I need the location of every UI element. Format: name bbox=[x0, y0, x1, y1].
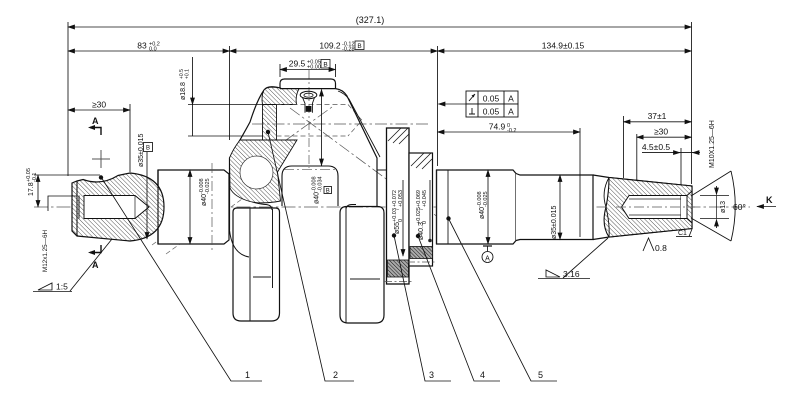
svg-text:B: B bbox=[146, 146, 150, 152]
svg-text:ø40: ø40 bbox=[314, 192, 321, 204]
svg-text:74.9: 74.9 bbox=[489, 122, 506, 132]
svg-text:ø35±0.015: ø35±0.015 bbox=[551, 205, 558, 239]
svg-text:83: 83 bbox=[137, 41, 147, 51]
svg-text:ø35±0.015: ø35±0.015 bbox=[138, 133, 145, 167]
svg-text:+0.00: +0.00 bbox=[307, 65, 321, 71]
svg-text:17.8: 17.8 bbox=[28, 182, 35, 196]
svg-text:0.05: 0.05 bbox=[483, 107, 500, 117]
svg-text:+0.045: +0.045 bbox=[422, 190, 428, 207]
svg-text:-0.2: -0.2 bbox=[507, 128, 516, 134]
svg-text:+0.053: +0.053 bbox=[398, 190, 404, 207]
svg-text:0.8: 0.8 bbox=[655, 243, 667, 253]
svg-text:≥30: ≥30 bbox=[92, 100, 106, 110]
svg-text:3:16: 3:16 bbox=[563, 269, 580, 279]
svg-text:A: A bbox=[508, 107, 514, 117]
svg-text:134.9±0.15: 134.9±0.15 bbox=[542, 41, 585, 51]
svg-text:-0.034: -0.034 bbox=[318, 176, 324, 192]
svg-text:109.2: 109.2 bbox=[319, 41, 341, 51]
svg-text:1:5: 1:5 bbox=[56, 282, 68, 292]
svg-text:2: 2 bbox=[333, 370, 338, 380]
svg-text:M12x1.25—6H: M12x1.25—6H bbox=[42, 230, 49, 272]
svg-text:≥30: ≥30 bbox=[654, 127, 668, 137]
svg-text:B: B bbox=[326, 188, 330, 194]
svg-text:-0.025: -0.025 bbox=[205, 178, 211, 194]
svg-text:B: B bbox=[357, 43, 361, 50]
svg-text:A: A bbox=[92, 260, 99, 270]
svg-text:A: A bbox=[508, 94, 514, 104]
svg-text:ø40: ø40 bbox=[479, 207, 486, 219]
svg-text:+0.1: +0.1 bbox=[185, 69, 191, 79]
svg-text:5: 5 bbox=[538, 370, 543, 380]
svg-text:4.5±0.5: 4.5±0.5 bbox=[642, 142, 671, 152]
svg-text:4: 4 bbox=[480, 370, 485, 380]
svg-text:0: 0 bbox=[398, 219, 404, 222]
svg-text:0.05: 0.05 bbox=[483, 94, 500, 104]
svg-text:-0.1: -0.1 bbox=[32, 173, 38, 182]
svg-text:60°: 60° bbox=[733, 202, 746, 212]
svg-text:(327.1): (327.1) bbox=[356, 15, 385, 25]
svg-text:ø13: ø13 bbox=[720, 201, 727, 213]
svg-text:M10X1.25—6H: M10X1.25—6H bbox=[709, 120, 716, 168]
svg-text:B: B bbox=[323, 62, 327, 69]
svg-text:ø55: ø55 bbox=[394, 222, 401, 234]
svg-text:29.5: 29.5 bbox=[289, 59, 306, 69]
svg-text:ø40: ø40 bbox=[201, 194, 208, 206]
svg-text:0: 0 bbox=[422, 221, 428, 224]
svg-text:A: A bbox=[485, 256, 490, 263]
svg-text:C1: C1 bbox=[678, 230, 687, 237]
svg-text:A: A bbox=[92, 116, 99, 126]
svg-text:3: 3 bbox=[429, 370, 434, 380]
svg-text:1: 1 bbox=[245, 370, 250, 380]
svg-text:-0.025: -0.025 bbox=[483, 191, 489, 207]
svg-text:37±1: 37±1 bbox=[648, 111, 667, 121]
svg-text:K: K bbox=[766, 195, 773, 205]
svg-text:ø18.8: ø18.8 bbox=[180, 82, 187, 100]
svg-text:-0.28: -0.28 bbox=[342, 47, 355, 53]
svg-text:0.0: 0.0 bbox=[149, 47, 157, 53]
